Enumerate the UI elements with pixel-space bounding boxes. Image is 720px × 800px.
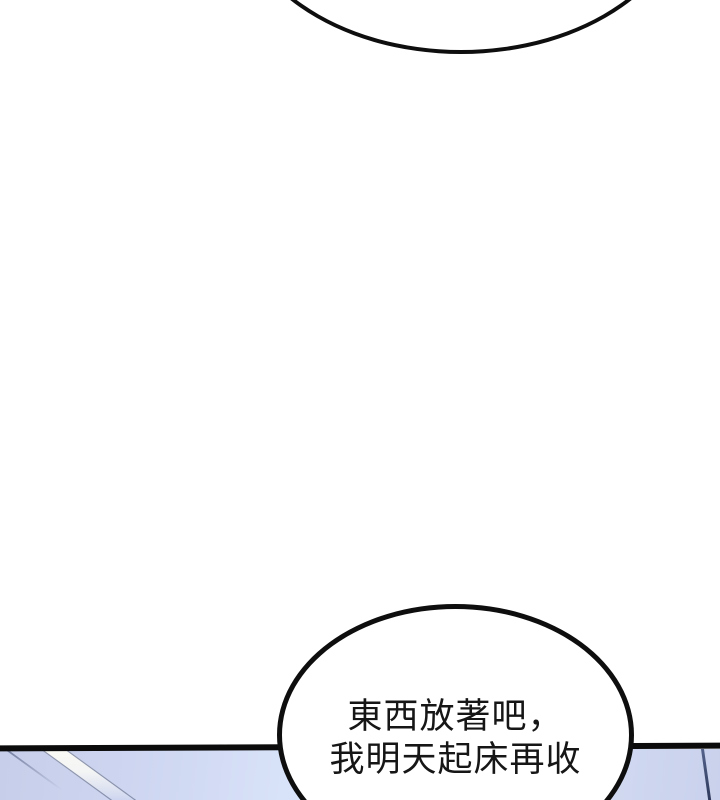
speech-text: 東西放著吧， 我明天起床再收	[282, 695, 629, 781]
light-reflection-stripe	[40, 749, 136, 800]
speech-text-line-1: 東西放著吧，	[282, 695, 629, 738]
comic-panel: 東西放著吧， 我明天起床再收	[0, 0, 720, 800]
wall-seam-line	[701, 749, 711, 800]
bottom-speech-bubble: 東西放著吧， 我明天起床再收	[277, 604, 634, 800]
top-speech-bubble	[233, 0, 689, 54]
speech-text-line-2: 我明天起床再收	[282, 738, 629, 781]
